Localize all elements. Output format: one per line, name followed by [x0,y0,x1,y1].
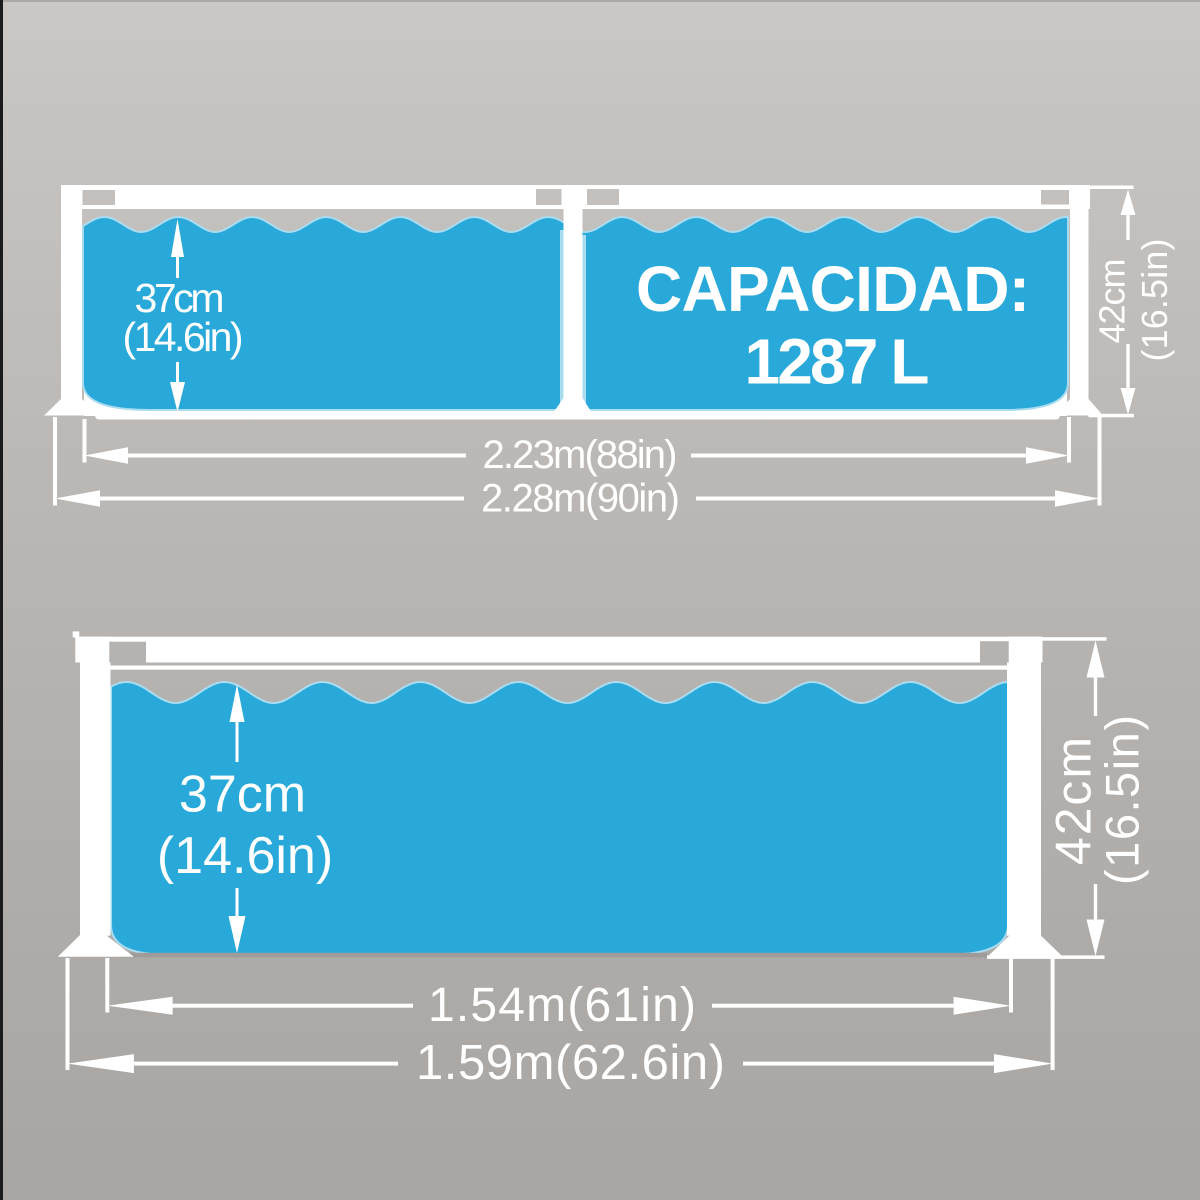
svg-text:42cm: 42cm [1046,737,1102,865]
svg-text:(14.6in): (14.6in) [123,314,244,360]
svg-text:2.23m(88in): 2.23m(88in) [483,433,678,477]
svg-text:1.54m(61in): 1.54m(61in) [428,979,696,1032]
svg-text:37cm: 37cm [179,766,306,824]
svg-text:2.28m(90in): 2.28m(90in) [481,477,680,521]
svg-text:(14.6in): (14.6in) [157,827,333,885]
svg-text:1287 L: 1287 L [745,326,930,398]
svg-text:(16.5in): (16.5in) [1134,239,1175,362]
svg-text:CAPACIDAD:: CAPACIDAD: [636,253,1030,325]
svg-text:1.59m(62.6in): 1.59m(62.6in) [416,1036,725,1090]
svg-text:(16.5in): (16.5in) [1096,715,1149,885]
svg-text:42cm: 42cm [1092,259,1133,344]
